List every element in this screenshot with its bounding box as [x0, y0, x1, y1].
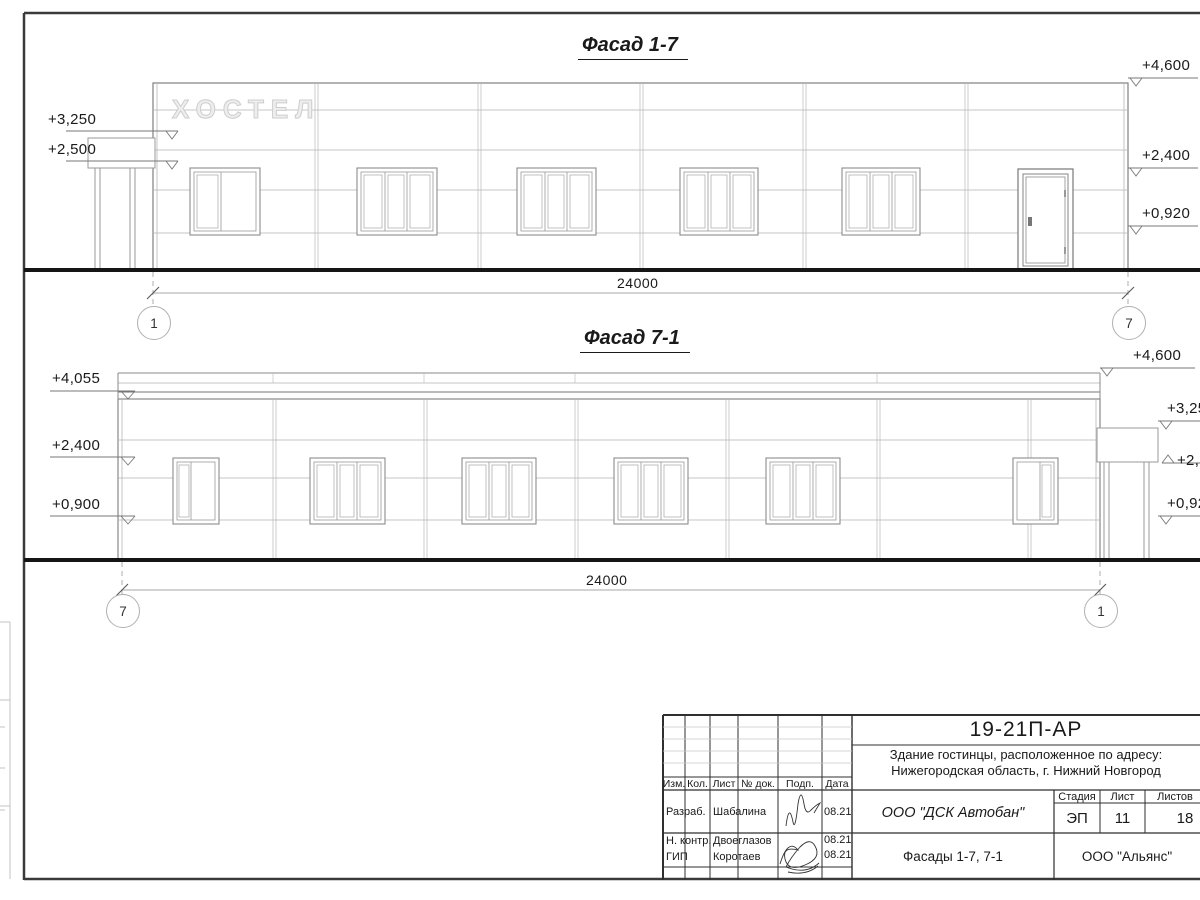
facade1-axis-1: 1 [137, 306, 171, 340]
stamp-sheet-value: 11 [1100, 804, 1145, 832]
facade1-elev-right-1: +2,400 [1142, 147, 1190, 164]
facade1-door [1018, 169, 1073, 269]
facade1-window-4 [680, 168, 758, 235]
facade1-elev-left-1: +2,500 [48, 141, 96, 158]
facade2-elev-right-0: +4,600 [1133, 347, 1181, 364]
stamp-col-data: Дата [822, 777, 852, 790]
facade1-window-5 [842, 168, 920, 235]
left-margin-strip [0, 622, 10, 879]
facade2-axis-1: 1 [1084, 594, 1118, 628]
facade2-axis-7: 7 [106, 594, 140, 628]
stamp-col-list: Лист [710, 777, 738, 790]
stamp-row0-name: Шабалина [713, 806, 766, 818]
facade2-window-4 [614, 458, 688, 524]
facade1-elev-right-0: +4,600 [1142, 57, 1190, 74]
signature-shabalina [786, 795, 820, 826]
facade2-window-6 [1013, 458, 1058, 524]
facade2-window-1 [173, 458, 219, 524]
facade-7-1-drawing [24, 368, 1200, 596]
stamp-col-podp: Подп. [778, 777, 822, 790]
facade2-elev-left-2: +0,900 [52, 496, 100, 513]
stamp-row2-name: Коротаев [713, 851, 761, 863]
facade1-title: Фасад 1-7 [578, 34, 688, 60]
facade1-elev-right-2: +0,920 [1142, 205, 1190, 222]
facade2-elev-left-1: +2,400 [52, 437, 100, 454]
stamp-sheets-label: Листов [1145, 790, 1200, 803]
stamp-row2-date: 08.21 [824, 849, 852, 861]
facade1-canopy [88, 138, 155, 269]
stamp-project-name: Здание гостинцы, расположенное по адресу… [852, 747, 1200, 779]
facade1-window-2 [357, 168, 437, 235]
facade1-window-3 [517, 168, 596, 235]
facade2-window-3 [462, 458, 536, 524]
stamp-row0-role: Разраб. [666, 806, 706, 818]
stamp-col-izm: Изм. [663, 777, 685, 790]
drawing-sheet: { "facade1": { "title": "Фасад 1-7", "si… [0, 0, 1200, 900]
stamp-stage-value: ЭП [1054, 804, 1100, 832]
stamp-sheet-title: Фасады 1-7, 7-1 [852, 834, 1054, 879]
facade2-window-2 [310, 458, 385, 524]
facade2-elev-right-2: +2,500 [1177, 452, 1200, 469]
stamp-sheet-label: Лист [1100, 790, 1145, 803]
facade2-title: Фасад 7-1 [580, 327, 690, 353]
stamp-row1-name: Двоеглазов [713, 835, 771, 847]
stamp-row1-date: 08.21 [824, 834, 852, 846]
facade1-elev-left-0: +3,250 [48, 111, 96, 128]
stamp-row0-date: 08.21 [824, 806, 852, 818]
facade2-elev-left-0: +4,055 [52, 370, 100, 387]
facade2-elev-right-3: +0,920 [1167, 495, 1200, 512]
facade1-axis-7: 7 [1112, 306, 1146, 340]
stamp-company: ООО "ДСК Автобан" [852, 795, 1054, 831]
stamp-row2-role: ГИП [666, 851, 688, 863]
facade2-canopy [1097, 428, 1158, 559]
facade1-dimension-label: 24000 [617, 275, 658, 291]
facade2-elev-right-1: +3,250 [1167, 400, 1200, 417]
stamp-contractor: ООО "Альянс" [1054, 834, 1200, 879]
facade2-dimension-label: 24000 [586, 572, 627, 588]
stamp-stage-label: Стадия [1054, 790, 1100, 803]
signature-korotaev [780, 842, 819, 873]
facade2-window-5 [766, 458, 840, 524]
stamp-sheets-value: 18 [1145, 804, 1200, 832]
facade1-window-1 [190, 168, 260, 235]
stamp-doc-number: 19-21П-АР [852, 717, 1200, 743]
stamp-col-kol: Кол. [685, 777, 710, 790]
stamp-row1-role: Н. контр. [666, 835, 711, 847]
hostel-sign: ХОСТЕЛ [172, 94, 321, 125]
stamp-col-doc: № док. [738, 777, 778, 790]
